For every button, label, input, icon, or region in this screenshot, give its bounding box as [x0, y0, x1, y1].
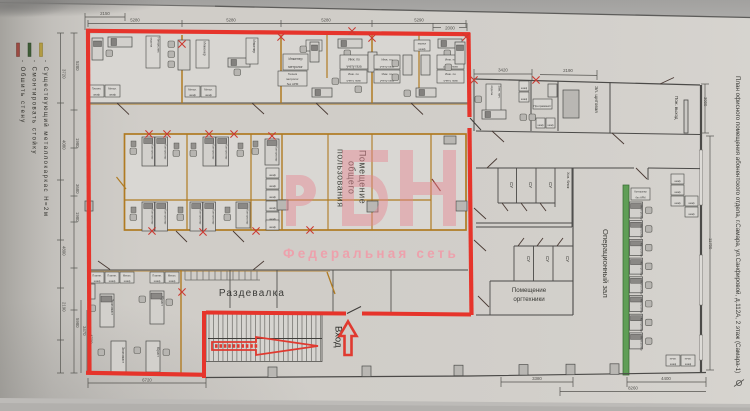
svg-text:Инж. по: Инж. по — [445, 72, 456, 76]
svg-text:Юрист: Юрист — [156, 347, 160, 357]
svg-text:Операционный зал: Операционный зал — [601, 229, 610, 298]
svg-text:шкаф: шкаф — [419, 47, 427, 51]
svg-text:Метал.: Метал. — [108, 87, 117, 91]
svg-text:Контролер: Контролер — [640, 224, 644, 239]
svg-text:Контролер: Контролер — [640, 299, 644, 314]
svg-text:шкаф: шкаф — [269, 184, 277, 188]
svg-text:5280: 5280 — [321, 18, 331, 23]
svg-text:4080: 4080 — [62, 140, 67, 150]
svg-text:Инж. по: Инж. по — [348, 57, 360, 61]
svg-text:- Обшить стену: - Обшить стену — [19, 60, 25, 124]
svg-text:Метал.: Метал. — [188, 87, 197, 91]
svg-text:Контролер: Контролер — [212, 209, 216, 225]
svg-text:11700: 11700 — [708, 238, 713, 250]
svg-text:3680: 3680 — [75, 184, 80, 194]
svg-text:шкаф: шкаф — [521, 87, 527, 90]
svg-text:Инженер: Инженер — [288, 57, 302, 61]
svg-text:шкаф: шкаф — [547, 124, 553, 127]
svg-text:отдела: отдела — [150, 38, 154, 48]
svg-text:3000: 3000 — [703, 97, 708, 107]
svg-text:1980: 1980 — [75, 212, 80, 222]
svg-text:шкаф: шкаф — [670, 363, 676, 366]
svg-text:Помещение: Помещение — [512, 287, 547, 294]
svg-text:СУ: СУ — [565, 256, 570, 262]
svg-text:Платян.: Платян. — [107, 274, 116, 277]
svg-text:8260: 8260 — [628, 386, 638, 391]
svg-text:2000: 2000 — [445, 25, 455, 30]
svg-text:5280: 5280 — [75, 61, 80, 71]
svg-text:Контролер: Контролер — [640, 206, 644, 221]
svg-text:метролог: метролог — [288, 65, 303, 69]
svg-text:Техник: Техник — [288, 72, 298, 76]
svg-text:шкаф: шкаф — [674, 202, 680, 205]
svg-text:Метал.: Метал. — [123, 274, 131, 277]
svg-text:СУ: СУ — [526, 256, 531, 262]
svg-text:Контролер: Контролер — [640, 280, 644, 295]
svg-text:- Смонтировать стойку: - Смонтировать стойку — [31, 60, 38, 155]
svg-text:Метал.: Метал. — [168, 274, 176, 277]
svg-text:шкаф: шкаф — [688, 202, 694, 205]
svg-text:2190: 2190 — [563, 68, 573, 73]
svg-text:без АРМ: без АРМ — [287, 82, 299, 86]
svg-text:учету газа: учету газа — [443, 79, 457, 83]
svg-text:Платян.: Платян. — [152, 274, 161, 277]
svg-text:перекл: перекл — [418, 42, 427, 45]
svg-text:шкаф: шкаф — [688, 213, 694, 216]
svg-text:Зам. нач.: Зам. нач. — [497, 86, 501, 99]
svg-text:шкаф: шкаф — [269, 173, 277, 177]
svg-text:учету газа: учету газа — [346, 79, 360, 83]
svg-text:3420: 3420 — [498, 68, 508, 73]
svg-text:шкаф: шкаф — [109, 280, 116, 283]
svg-text:Контролер: Контролер — [151, 144, 155, 160]
svg-text:Программист: Программист — [534, 104, 553, 108]
svg-text:4400: 4400 — [661, 376, 671, 381]
svg-text:5290: 5290 — [414, 18, 424, 23]
svg-text:2150: 2150 — [100, 11, 110, 16]
svg-text:Контролер: Контролер — [275, 146, 279, 162]
svg-text:Контролер: Контролер — [225, 144, 229, 160]
svg-text:Метал.: Метал. — [204, 87, 213, 91]
svg-text:шкаф: шкаф — [94, 280, 101, 283]
svg-text:Начальник: Начальник — [157, 38, 161, 54]
svg-text:5980: 5980 — [75, 318, 80, 328]
svg-text:шкаф: шкаф — [109, 93, 117, 97]
svg-text:1980: 1980 — [75, 138, 80, 148]
svg-text:шкаф: шкаф — [674, 191, 680, 194]
svg-text:Контролер: Контролер — [640, 262, 644, 277]
svg-text:шкаф: шкаф — [269, 195, 277, 199]
svg-text:Контролер: Контролер — [246, 209, 250, 225]
svg-text:шкаф: шкаф — [154, 280, 161, 283]
svg-text:Инж. по: Инж. по — [381, 57, 392, 61]
svg-text:шкаф: шкаф — [205, 93, 213, 97]
svg-text:учету газа: учету газа — [347, 64, 362, 68]
svg-text:шкаф: шкаф — [189, 93, 197, 97]
svg-text:СУ: СУ — [509, 182, 514, 188]
svg-text:Экономист: Экономист — [121, 347, 125, 364]
svg-text:4800: 4800 — [62, 246, 67, 256]
svg-text:3720: 3720 — [62, 69, 67, 79]
svg-text:План офисного помещения абонен: План офисного помещения абонентского отд… — [734, 76, 741, 373]
svg-text:Эл. щитовая: Эл. щитовая — [594, 86, 599, 113]
svg-text:Контролер: Контролер — [640, 318, 644, 333]
svg-text:печат.: печат. — [670, 357, 677, 360]
svg-text:5280: 5280 — [130, 18, 140, 23]
svg-text:3380: 3380 — [532, 376, 542, 381]
svg-text:Раздевалка: Раздевалка — [219, 288, 285, 299]
svg-text:шкаф: шкаф — [674, 180, 680, 183]
svg-text:Федеральная сеть: Федеральная сеть — [283, 246, 459, 261]
svg-text:Инж. по: Инж. по — [382, 72, 393, 76]
svg-text:5280: 5280 — [226, 18, 236, 23]
svg-text:Контролер: Контролер — [640, 336, 644, 351]
svg-text:Контролер: Контролер — [199, 209, 203, 225]
svg-text:3470: 3470 — [82, 326, 87, 336]
svg-text:метролог: метролог — [286, 77, 298, 81]
svg-text:Контролер: Контролер — [212, 144, 216, 160]
svg-text:Инженер: Инженер — [252, 40, 256, 54]
svg-text:6720: 6720 — [142, 377, 152, 382]
svg-text:Контролер: Контролер — [151, 209, 155, 225]
svg-text:Платян.: Платян. — [92, 274, 101, 277]
svg-text:шкаф: шкаф — [169, 280, 176, 283]
svg-text:2190: 2190 — [62, 302, 67, 312]
svg-text:шкаф: шкаф — [124, 280, 131, 283]
svg-text:оргтехники: оргтехники — [513, 296, 545, 303]
svg-text:без АРМ: без АРМ — [636, 197, 646, 200]
svg-text:шкаф: шкаф — [269, 225, 277, 229]
svg-text:Инж. по: Инж. по — [445, 57, 456, 61]
svg-text:- Существующий металлокаркас Н: - Существующий металлокаркас Н=2м — [42, 60, 49, 218]
svg-text:Инж. по: Инж. по — [348, 72, 359, 76]
svg-text:отдела: отдела — [490, 86, 494, 96]
svg-text:Контролер: Контролер — [164, 209, 168, 225]
svg-text:Контролер: Контролер — [634, 191, 647, 194]
svg-text:Платян.: Платян. — [92, 87, 102, 91]
svg-text:Пож. выход: Пож. выход — [674, 96, 679, 120]
svg-text:Инженер: Инженер — [203, 42, 207, 56]
svg-text:Контролер: Контролер — [164, 144, 168, 160]
svg-text:Контролер: Контролер — [640, 243, 644, 258]
svg-text:СУ: СУ — [545, 256, 550, 262]
svg-text:СУ: СУ — [528, 182, 533, 188]
svg-text:шкаф: шкаф — [93, 93, 101, 97]
svg-text:Хоз. блок: Хоз. блок — [566, 172, 570, 189]
svg-text:печат.: печат. — [685, 357, 692, 360]
svg-text:шкаф: шкаф — [269, 206, 277, 210]
svg-text:шкаф: шкаф — [537, 124, 543, 127]
svg-text:шкаф: шкаф — [685, 363, 691, 366]
svg-text:шкаф: шкаф — [521, 98, 527, 101]
svg-text:СУ: СУ — [548, 182, 553, 188]
